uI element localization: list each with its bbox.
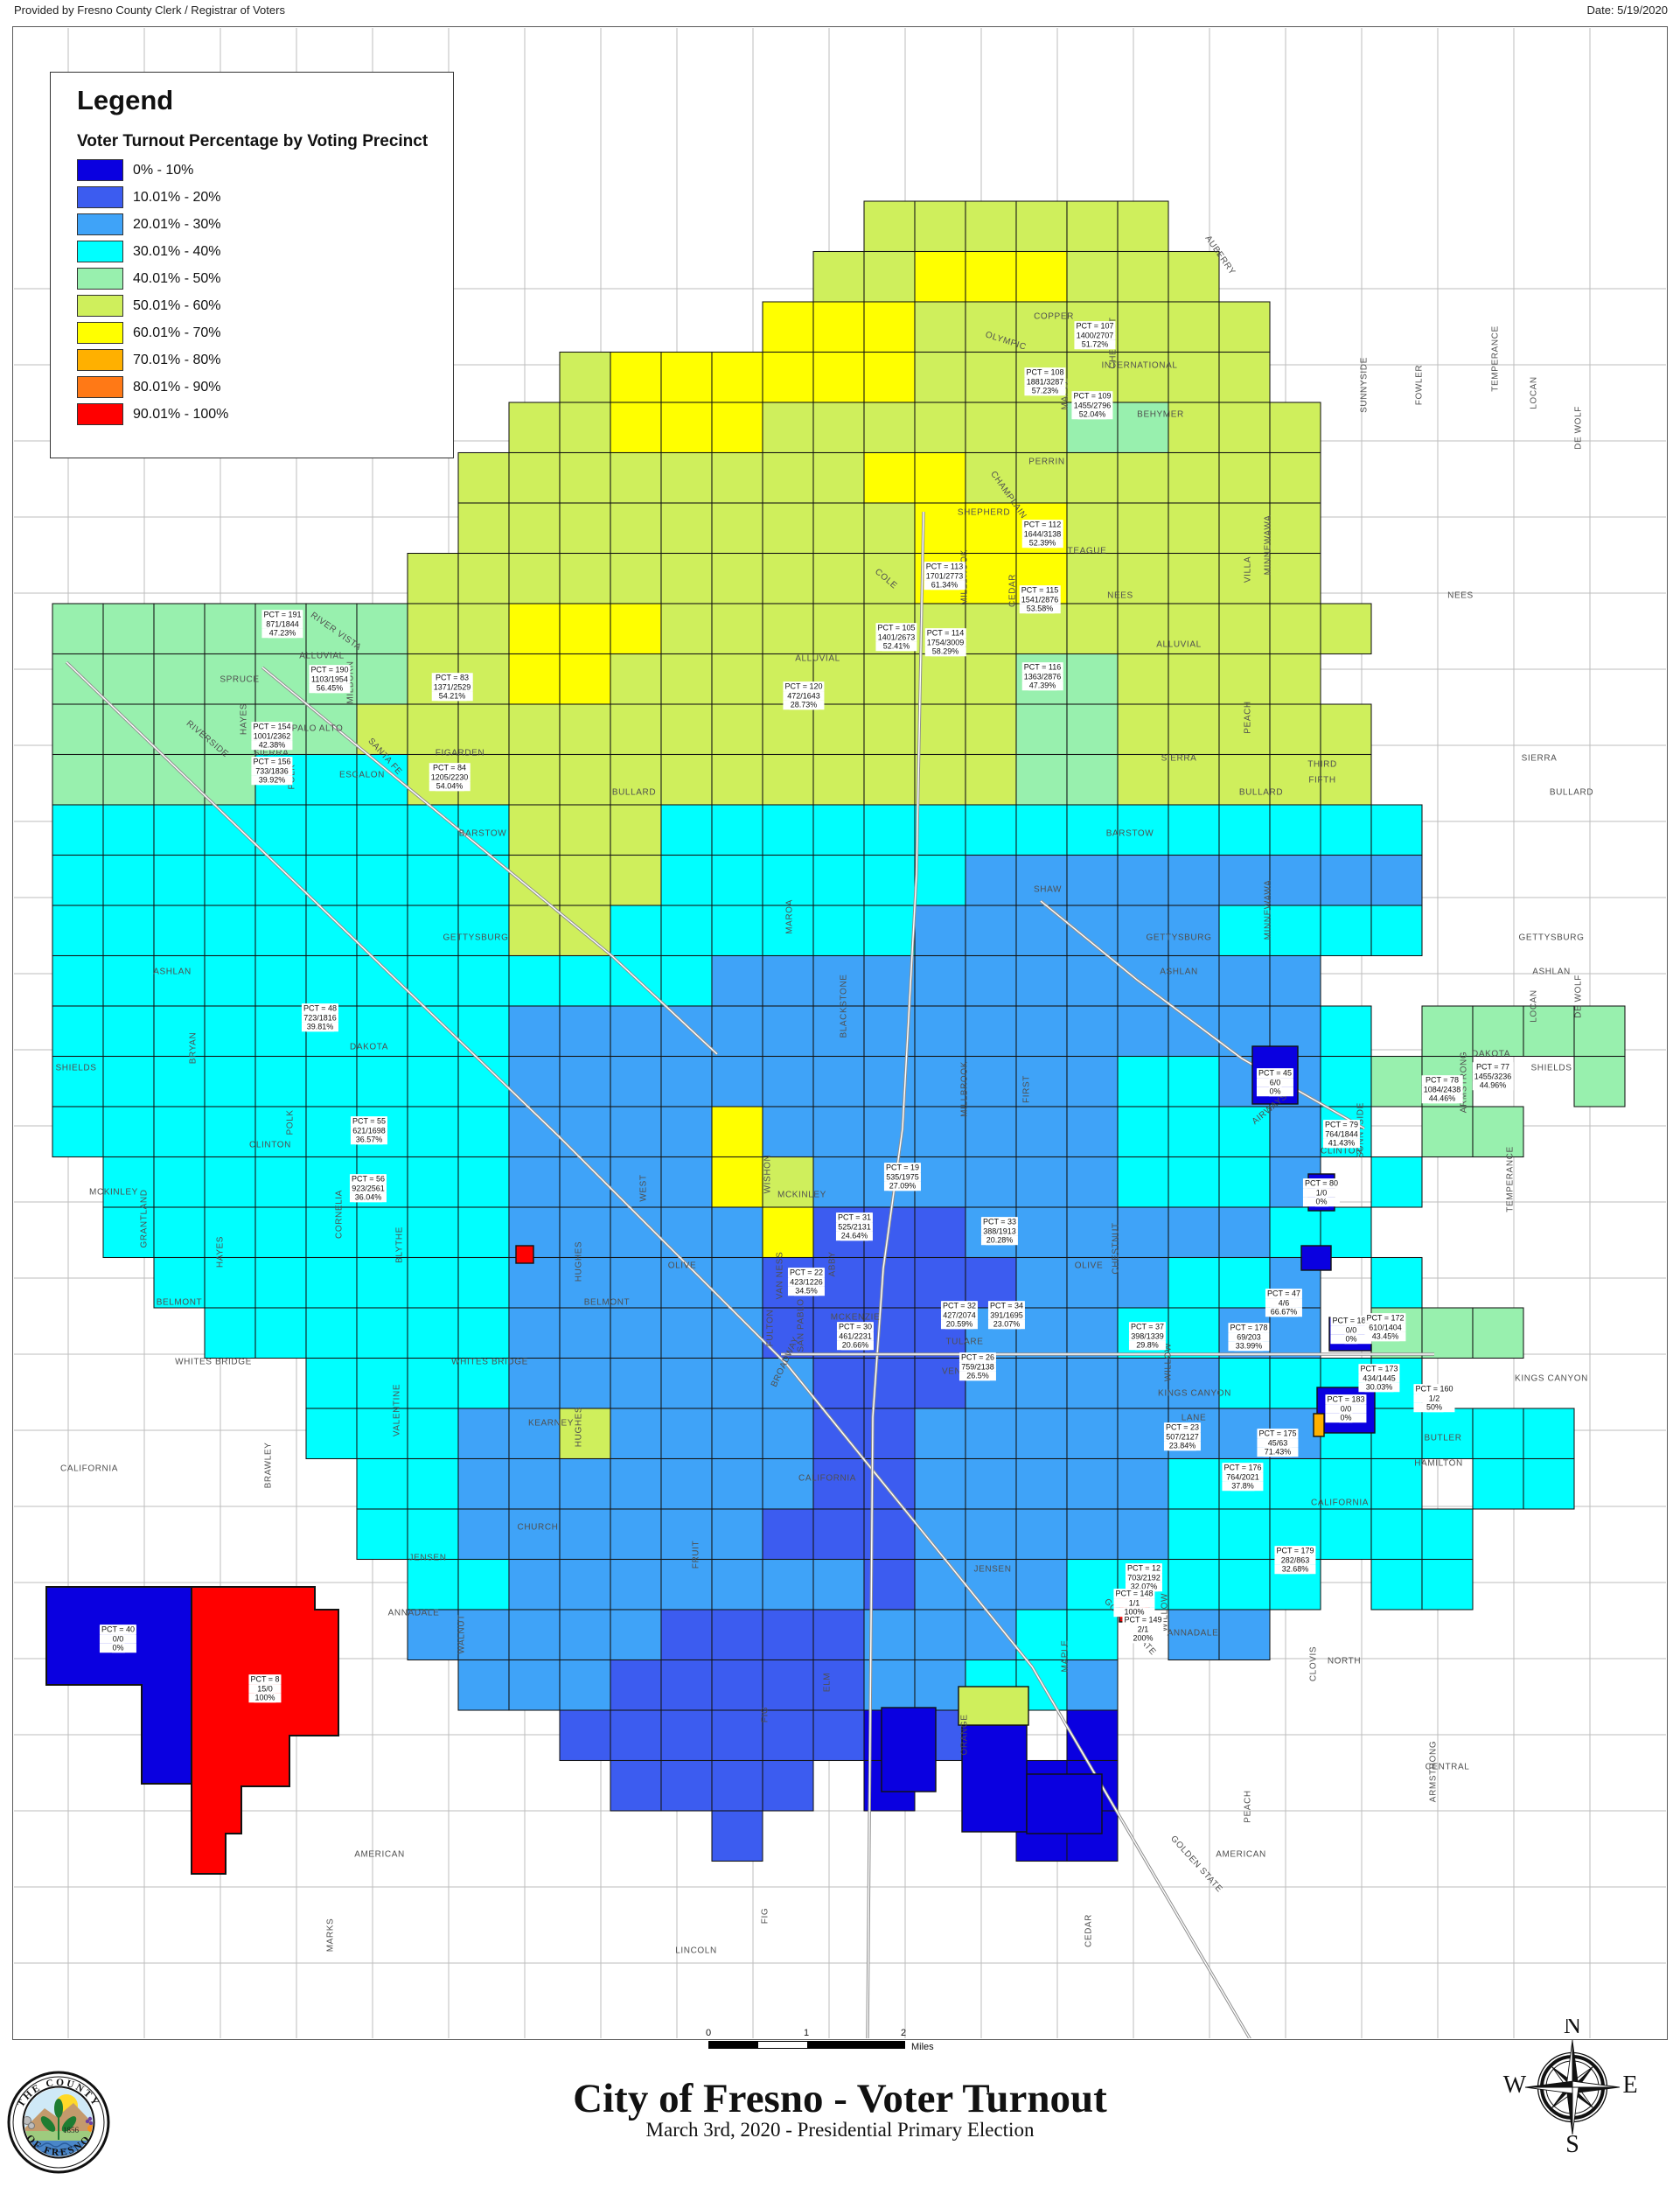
scale-unit-label: Miles (911, 2042, 934, 2052)
legend-panel: Legend Voter Turnout Percentage by Votin… (50, 72, 454, 458)
legend-item: 30.01% - 40% (77, 238, 453, 265)
legend-item: 80.01% - 90% (77, 374, 453, 401)
legend-swatch (77, 186, 123, 208)
legend-item: 10.01% - 20% (77, 184, 453, 211)
compass-rose-icon: NSEW (1498, 2019, 1647, 2177)
legend-subtitle: Voter Turnout Percentage by Voting Preci… (77, 132, 453, 151)
legend-swatch (77, 159, 123, 181)
legend-item: 40.01% - 50% (77, 265, 453, 292)
svg-text:N: N (1564, 2019, 1581, 2039)
svg-text:S: S (1565, 2131, 1579, 2158)
legend-item-label: 70.01% - 80% (133, 353, 221, 368)
legend-item: 90.01% - 100% (77, 401, 453, 428)
legend-item-label: 90.01% - 100% (133, 407, 228, 423)
svg-text:W: W (1503, 2072, 1527, 2099)
legend-item: 20.01% - 30% (77, 211, 453, 238)
scale-tick-0: 0 (706, 2028, 711, 2038)
legend-swatch (77, 403, 123, 425)
legend-items: 0% - 10%10.01% - 20%20.01% - 30%30.01% -… (51, 157, 453, 428)
legend-item: 70.01% - 80% (77, 346, 453, 374)
legend-item-label: 80.01% - 90% (133, 380, 221, 395)
legend-swatch (77, 241, 123, 262)
legend-title: Legend (77, 85, 453, 116)
legend-item-label: 60.01% - 70% (133, 325, 221, 341)
legend-item: 0% - 10% (77, 157, 453, 184)
legend-swatch (77, 376, 123, 398)
scale-tick-2: 2 (901, 2028, 906, 2038)
legend-swatch (77, 268, 123, 290)
legend-item-label: 30.01% - 40% (133, 244, 221, 260)
legend-item-label: 20.01% - 30% (133, 217, 221, 233)
legend-swatch (77, 295, 123, 317)
legend-item-label: 40.01% - 50% (133, 271, 221, 287)
legend-item-label: 10.01% - 20% (133, 190, 221, 206)
svg-text:E: E (1622, 2072, 1637, 2099)
legend-swatch (77, 349, 123, 371)
legend-swatch (77, 213, 123, 235)
county-seal-logo: 1856 THE COUNTY OF FRESNO (2, 2065, 115, 2180)
legend-item: 60.01% - 70% (77, 319, 453, 346)
scale-bar-box (708, 2041, 905, 2049)
legend-item-label: 0% - 10% (133, 163, 193, 178)
svg-text:1856: 1856 (63, 2126, 80, 2135)
legend-item-label: 50.01% - 60% (133, 298, 221, 314)
legend-swatch (77, 322, 123, 344)
page-subtitle: March 3rd, 2020 - Presidential Primary E… (0, 2119, 1680, 2142)
legend-item: 50.01% - 60% (77, 292, 453, 319)
page-title: City of Fresno - Voter Turnout (0, 2075, 1680, 2122)
scale-tick-1: 1 (804, 2028, 809, 2038)
